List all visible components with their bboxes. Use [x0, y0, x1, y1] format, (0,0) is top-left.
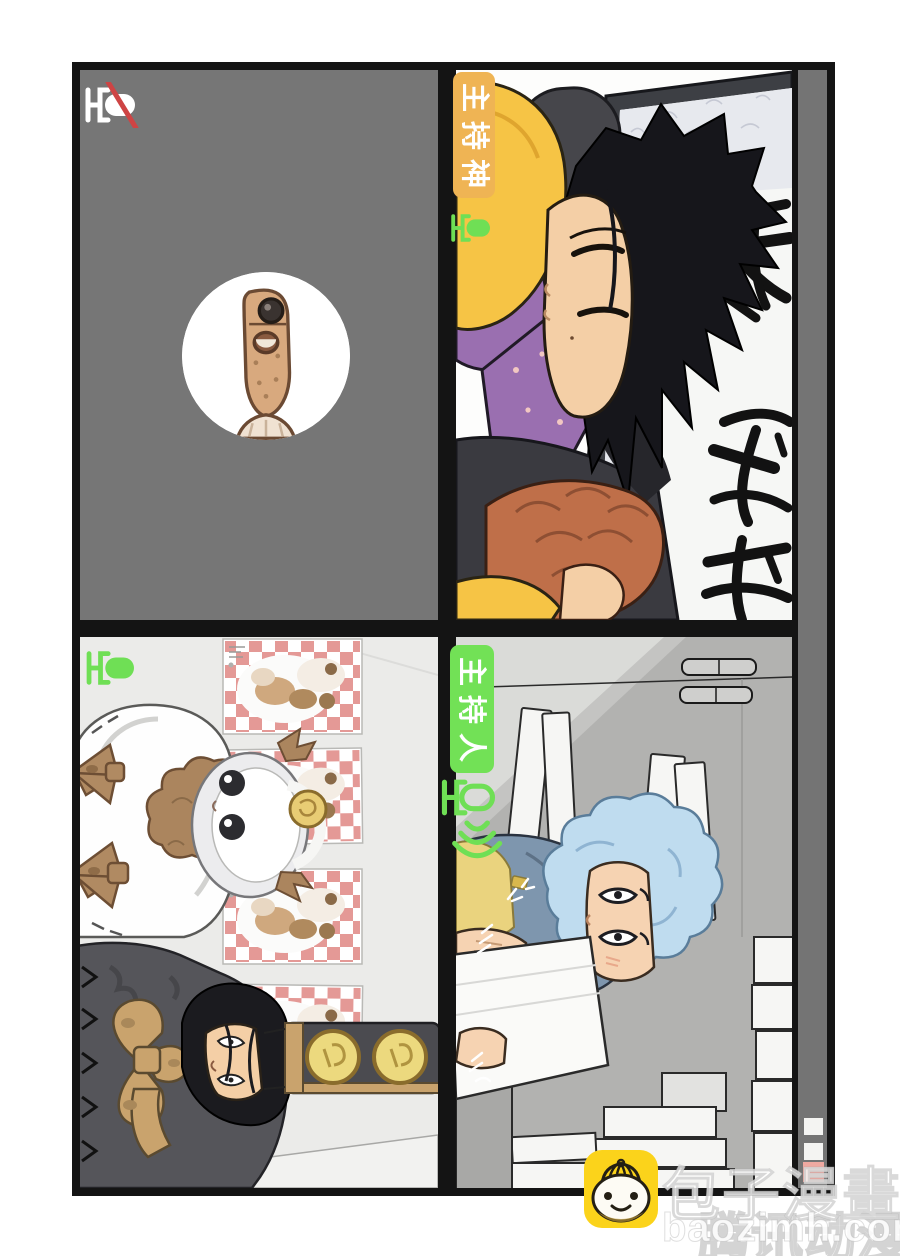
panel-host-god-tile: [456, 70, 792, 620]
sidebar-end-button: [803, 1162, 824, 1182]
mic-muted-icon: [82, 82, 142, 128]
sidebar-button: [804, 1143, 823, 1160]
comic-page: 主持神 主持人 腾讯动漫: [0, 0, 900, 1256]
hand: [456, 1028, 506, 1068]
participant-label-host-human: 主持人: [450, 645, 494, 773]
sound-wave: [461, 833, 494, 842]
host-human-artwork: [456, 637, 792, 1188]
mic-on-icon: [83, 646, 141, 690]
host-god-face: [544, 190, 632, 417]
panel-host-human-tile: [456, 637, 792, 1188]
mic-speaking-icon: [434, 776, 506, 870]
sheep-eye: [219, 814, 245, 840]
watermark-ghost-text: 腾讯动漫: [698, 1196, 900, 1256]
sidebar-button: [804, 1118, 823, 1135]
host-human-face: [587, 862, 654, 980]
call-sidebar-strip: [798, 70, 827, 1188]
participant-label-host-god: 主持神: [453, 72, 495, 198]
host-god-artwork: [456, 70, 792, 620]
fish-eye: [259, 299, 283, 323]
gold-medallion: [307, 1031, 359, 1083]
gold-medallion: [374, 1031, 426, 1083]
guests-artwork: [80, 637, 438, 1188]
sound-wave: [467, 823, 487, 829]
mic-on-icon: [447, 210, 497, 246]
avatar-circle: [182, 272, 350, 440]
watermark-domain: baozimh.com: [662, 1206, 900, 1251]
gold-pendant: [290, 791, 326, 827]
sound-wave: [455, 843, 500, 855]
panel-guests-tile: [80, 637, 438, 1188]
ceremonial-hat: [285, 1023, 438, 1093]
sheep-eye: [219, 770, 245, 796]
salted-fish-avatar: [182, 272, 350, 440]
